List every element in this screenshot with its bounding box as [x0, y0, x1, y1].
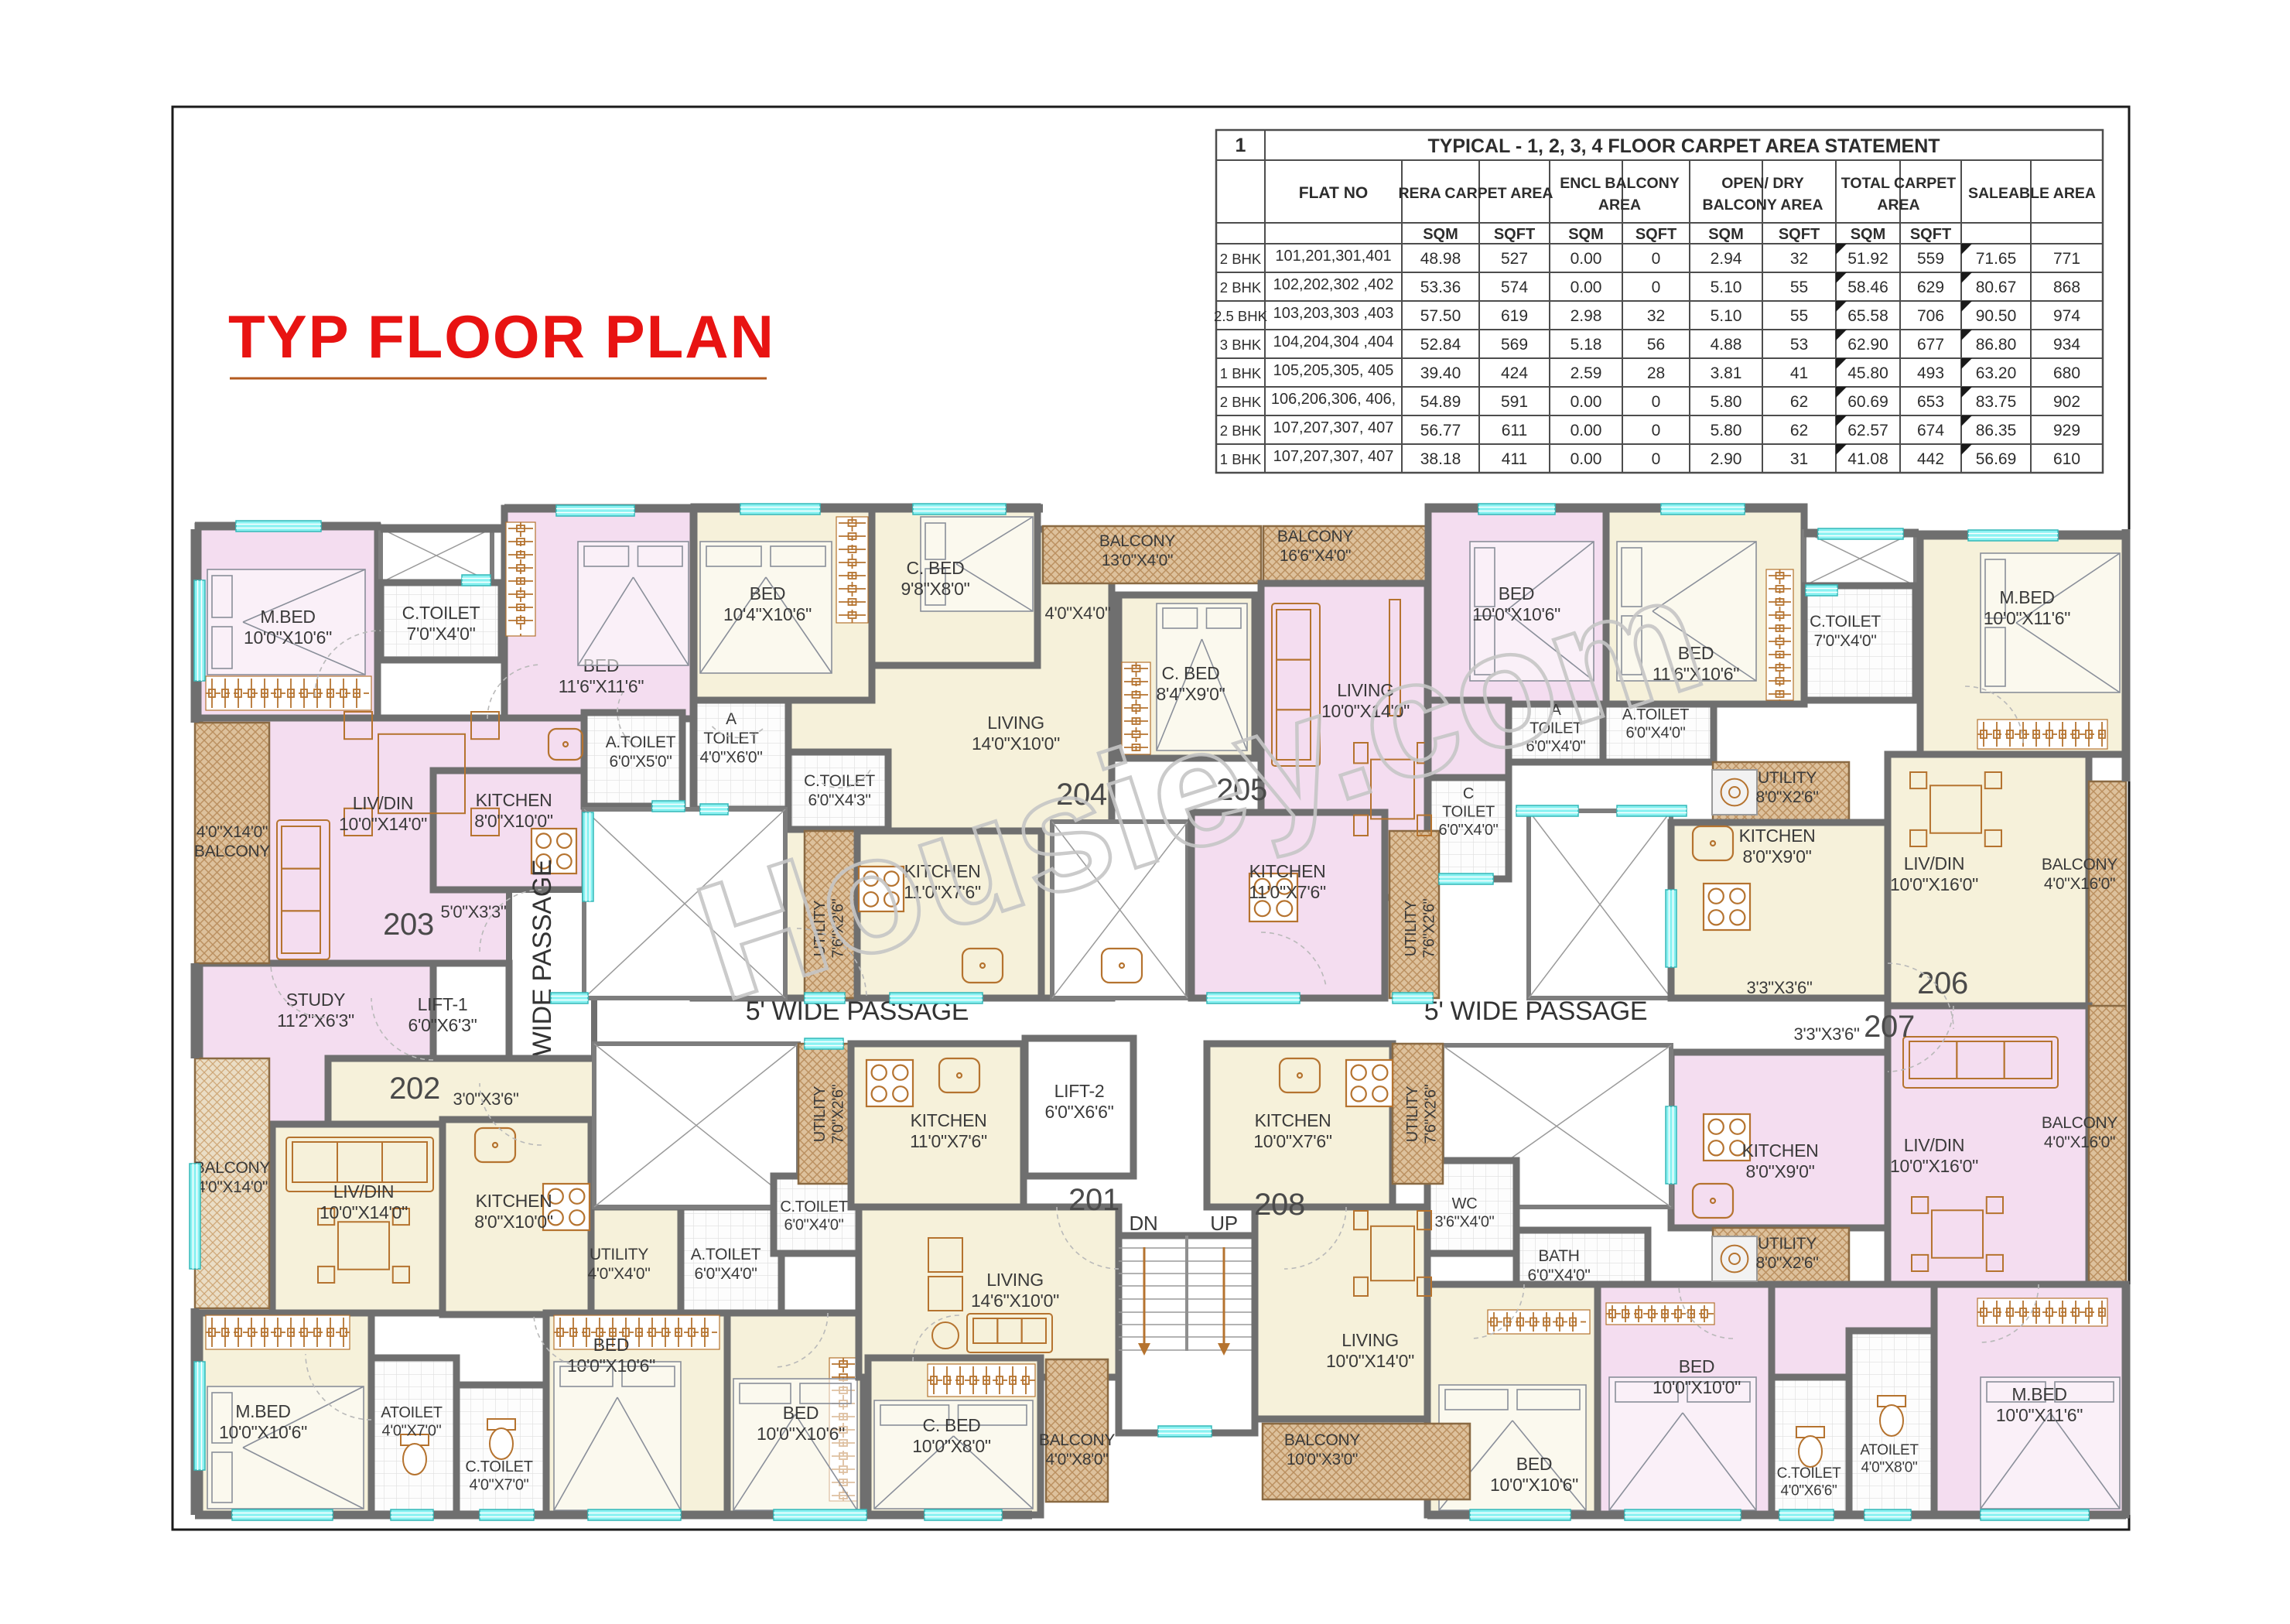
- svg-text:677: 677: [1917, 336, 1944, 354]
- svg-text:STUDY11'2"X6'3": STUDY11'2"X6'3": [277, 990, 354, 1031]
- svg-text:3 BHK: 3 BHK: [1220, 337, 1262, 353]
- svg-text:104,204,304 ,404: 104,204,304 ,404: [1273, 333, 1394, 350]
- svg-text:SQM: SQM: [1423, 226, 1458, 243]
- svg-text:2.98: 2.98: [1571, 307, 1602, 325]
- svg-text:771: 771: [2053, 250, 2080, 268]
- svg-text:UTILITY4'0"X4'0": UTILITY4'0"X4'0": [588, 1246, 651, 1283]
- svg-text:107,207,307, 407: 107,207,307, 407: [1273, 419, 1394, 436]
- svg-text:55: 55: [1790, 307, 1808, 325]
- svg-text:674: 674: [1917, 422, 1944, 439]
- svg-text:0.00: 0.00: [1571, 393, 1602, 411]
- svg-text:4'0"X14'0"BALCONY: 4'0"X14'0"BALCONY: [194, 823, 271, 860]
- svg-text:974: 974: [2053, 307, 2080, 325]
- svg-text:UTILITY8'0"X2'6": UTILITY8'0"X2'6": [1756, 769, 1819, 806]
- svg-text:48.98: 48.98: [1420, 250, 1461, 268]
- svg-text:208: 208: [1254, 1188, 1305, 1222]
- svg-text:58.46: 58.46: [1847, 279, 1888, 296]
- svg-text:4.88: 4.88: [1711, 336, 1742, 354]
- svg-text:424: 424: [1501, 364, 1528, 382]
- svg-text:SQM: SQM: [1708, 226, 1744, 243]
- svg-text:62.90: 62.90: [1847, 336, 1888, 354]
- svg-text:TYP FLOOR PLAN: TYP FLOOR PLAN: [228, 303, 775, 371]
- svg-text:56.69: 56.69: [1976, 450, 2017, 468]
- svg-text:ATOILET4'0"X7'0": ATOILET4'0"X7'0": [381, 1404, 442, 1440]
- svg-text:UTILITY8'0"X2'6": UTILITY8'0"X2'6": [1756, 1235, 1819, 1272]
- svg-text:32: 32: [1647, 307, 1665, 325]
- svg-text:86.35: 86.35: [1976, 422, 2017, 439]
- svg-text:TYPICAL - 1, 2, 3, 4 FLOOR CA: TYPICAL - 1, 2, 3, 4 FLOOR CARPET AREA S…: [1427, 135, 1940, 157]
- svg-text:ATOILET4'0"X8'0": ATOILET4'0"X8'0": [1860, 1442, 1919, 1475]
- svg-text:C.TOILET6'0"X4'0": C.TOILET6'0"X4'0": [780, 1198, 847, 1234]
- svg-text:KITCHEN8'0"X10'0": KITCHEN8'0"X10'0": [474, 1191, 553, 1232]
- svg-text:UTILITY7'6"X2'6": UTILITY7'6"X2'6": [1403, 898, 1438, 958]
- svg-text:KITCHEN8'0"X10'0": KITCHEN8'0"X10'0": [474, 790, 553, 831]
- svg-text:102,202,302 ,402: 102,202,302 ,402: [1273, 276, 1394, 293]
- svg-text:SQFT: SQFT: [1635, 226, 1676, 243]
- svg-text:902: 902: [2053, 393, 2080, 411]
- svg-text:3.81: 3.81: [1711, 364, 1742, 382]
- svg-text:3'3"X3'6": 3'3"X3'6": [1747, 978, 1813, 997]
- svg-text:28: 28: [1647, 364, 1665, 382]
- svg-text:0: 0: [1652, 250, 1661, 268]
- svg-text:BALCONY16'6"X4'0": BALCONY16'6"X4'0": [1277, 528, 1354, 565]
- svg-text:1: 1: [1236, 135, 1246, 156]
- svg-text:619: 619: [1501, 307, 1528, 325]
- svg-text:2.59: 2.59: [1571, 364, 1602, 382]
- svg-text:BALCONY4'0"X16'0": BALCONY4'0"X16'0": [2042, 856, 2118, 893]
- svg-text:C.TOILET7'0"X4'0": C.TOILET7'0"X4'0": [402, 603, 480, 644]
- svg-text:5.80: 5.80: [1711, 393, 1742, 411]
- svg-text:LIFT-26'0"X6'6": LIFT-26'0"X6'6": [1045, 1081, 1114, 1122]
- svg-text:BALCONY13'0"X4'0": BALCONY13'0"X4'0": [1099, 532, 1176, 569]
- svg-text:DN: DN: [1130, 1212, 1158, 1235]
- svg-text:52.84: 52.84: [1420, 336, 1461, 354]
- svg-text:411: 411: [1502, 450, 1527, 468]
- svg-text:C.TOILET4'0"X6'6": C.TOILET4'0"X6'6": [1777, 1465, 1841, 1499]
- svg-text:56: 56: [1647, 336, 1665, 354]
- svg-text:KITCHEN8'0"X9'0": KITCHEN8'0"X9'0": [1739, 826, 1816, 867]
- svg-text:AREA: AREA: [1877, 197, 1919, 214]
- svg-text:0: 0: [1652, 279, 1661, 296]
- svg-text:0: 0: [1652, 422, 1661, 439]
- svg-text:71.65: 71.65: [1976, 250, 2017, 268]
- svg-text:FLAT NO: FLAT NO: [1299, 184, 1368, 202]
- svg-text:53: 53: [1790, 336, 1808, 354]
- svg-text:5'0"X3'3": 5'0"X3'3": [441, 902, 507, 921]
- svg-text:868: 868: [2053, 279, 2080, 296]
- svg-text:AREA: AREA: [1598, 197, 1641, 214]
- svg-text:UTILITY7'6"X2'6": UTILITY7'6"X2'6": [1404, 1084, 1440, 1144]
- svg-text:SQM: SQM: [1851, 226, 1886, 243]
- svg-text:4'0"X4'0": 4'0"X4'0": [1045, 603, 1111, 623]
- svg-text:UTILITY7'0"X2'6": UTILITY7'0"X2'6": [812, 1084, 847, 1144]
- svg-text:2 BHK: 2 BHK: [1220, 251, 1262, 267]
- svg-text:RERA CARPET AREA: RERA CARPET AREA: [1398, 185, 1553, 202]
- svg-text:KITCHEN8'0"X9'0": KITCHEN8'0"X9'0": [1742, 1140, 1819, 1181]
- svg-text:C. BED9'8"X8'0": C. BED9'8"X8'0": [901, 558, 970, 599]
- svg-text:UP: UP: [1210, 1212, 1238, 1235]
- svg-text:LIFT-16'0"X6'3": LIFT-16'0"X6'3": [408, 994, 477, 1035]
- svg-text:527: 527: [1501, 250, 1528, 268]
- svg-text:60.69: 60.69: [1847, 393, 1888, 411]
- svg-text:1 BHK: 1 BHK: [1220, 365, 1262, 381]
- svg-text:39.40: 39.40: [1420, 364, 1461, 382]
- svg-text:5.80: 5.80: [1711, 422, 1742, 439]
- svg-text:62: 62: [1790, 393, 1808, 411]
- svg-text:0.00: 0.00: [1571, 279, 1602, 296]
- svg-text:KITCHEN10'0"X7'6": KITCHEN10'0"X7'6": [1253, 1110, 1332, 1151]
- svg-text:207: 207: [1864, 1010, 1915, 1044]
- svg-text:53.36: 53.36: [1420, 279, 1461, 296]
- svg-text:57.50: 57.50: [1420, 307, 1461, 325]
- svg-text:574: 574: [1501, 279, 1528, 296]
- svg-text:A.TOILET6'0"X5'0": A.TOILET6'0"X5'0": [606, 733, 676, 771]
- svg-text:SALEABLE AREA: SALEABLE AREA: [1968, 185, 2096, 202]
- svg-text:106,206,306, 406,: 106,206,306, 406,: [1271, 391, 1396, 408]
- svg-text:1 BHK: 1 BHK: [1220, 451, 1262, 467]
- svg-text:5.18: 5.18: [1571, 336, 1602, 354]
- svg-text:206: 206: [1917, 966, 1968, 1000]
- svg-text:0.00: 0.00: [1571, 450, 1602, 468]
- svg-text:2 BHK: 2 BHK: [1220, 394, 1262, 410]
- svg-text:653: 653: [1917, 393, 1944, 411]
- svg-text:2 BHK: 2 BHK: [1220, 422, 1262, 439]
- svg-text:55: 55: [1790, 279, 1808, 296]
- svg-text:54.89: 54.89: [1420, 393, 1461, 411]
- svg-text:41: 41: [1790, 364, 1808, 382]
- svg-text:C. BED10'0"X8'0": C. BED10'0"X8'0": [912, 1415, 991, 1456]
- svg-text:569: 569: [1501, 336, 1528, 354]
- svg-text:5' WIDE PASSAGE: 5' WIDE PASSAGE: [1424, 997, 1648, 1026]
- svg-text:83.75: 83.75: [1976, 393, 2017, 411]
- svg-text:C.TOILET7'0"X4'0": C.TOILET7'0"X4'0": [1810, 613, 1881, 650]
- svg-text:2.90: 2.90: [1711, 450, 1742, 468]
- svg-text:SQFT: SQFT: [1494, 226, 1535, 243]
- svg-text:105,205,305, 405: 105,205,305, 405: [1273, 362, 1394, 379]
- svg-text:TOTAL CARPET: TOTAL CARPET: [1841, 175, 1957, 192]
- svg-text:929: 929: [2053, 422, 2080, 439]
- svg-text:202: 202: [389, 1072, 440, 1106]
- svg-text:51.92: 51.92: [1847, 250, 1888, 268]
- svg-text:493: 493: [1917, 364, 1944, 382]
- svg-text:442: 442: [1917, 450, 1944, 468]
- svg-text:OPEN/ DRY: OPEN/ DRY: [1721, 175, 1804, 192]
- svg-text:SQFT: SQFT: [1910, 226, 1951, 243]
- svg-text:680: 680: [2053, 364, 2080, 382]
- svg-text:2 BHK: 2 BHK: [1220, 279, 1262, 296]
- svg-text:BALCONY4'0"X16'0": BALCONY4'0"X16'0": [2042, 1114, 2118, 1151]
- svg-text:65.58: 65.58: [1847, 307, 1888, 325]
- svg-text:KITCHEN11'0"X7'6": KITCHEN11'0"X7'6": [1249, 861, 1326, 902]
- svg-text:SQFT: SQFT: [1779, 226, 1820, 243]
- svg-text:62.57: 62.57: [1847, 422, 1888, 439]
- svg-text:0.00: 0.00: [1571, 422, 1602, 439]
- svg-text:63.20: 63.20: [1976, 364, 2017, 382]
- svg-text:559: 559: [1917, 250, 1944, 268]
- svg-text:56.77: 56.77: [1420, 422, 1461, 439]
- svg-text:KITCHEN11'0"X7'6": KITCHEN11'0"X7'6": [910, 1110, 987, 1151]
- svg-text:C.TOILET4'0"X7'0": C.TOILET4'0"X7'0": [465, 1458, 532, 1494]
- svg-text:629: 629: [1917, 279, 1944, 296]
- svg-text:2.94: 2.94: [1711, 250, 1742, 268]
- svg-text:201: 201: [1068, 1183, 1119, 1217]
- svg-text:610: 610: [2053, 450, 2080, 468]
- svg-text:934: 934: [2053, 336, 2080, 354]
- svg-text:A.TOILET6'0"X4'0": A.TOILET6'0"X4'0": [691, 1246, 761, 1283]
- svg-text:3'0"X3'6": 3'0"X3'6": [453, 1089, 519, 1109]
- svg-text:38.18: 38.18: [1420, 450, 1461, 468]
- svg-text:103,203,303 ,403: 103,203,303 ,403: [1273, 305, 1394, 322]
- svg-text:41.08: 41.08: [1847, 450, 1888, 468]
- svg-text:86.80: 86.80: [1976, 336, 2017, 354]
- svg-text:32: 32: [1790, 250, 1808, 268]
- svg-text:101,201,301,401: 101,201,301,401: [1275, 248, 1391, 265]
- svg-text:31: 31: [1790, 450, 1808, 468]
- svg-text:BALCONY10'0"X3'0": BALCONY10'0"X3'0": [1284, 1431, 1361, 1468]
- svg-text:706: 706: [1917, 307, 1944, 325]
- svg-text:2.5 BHK: 2.5 BHK: [1214, 308, 1268, 324]
- svg-text:5.10: 5.10: [1711, 279, 1742, 296]
- svg-text:611: 611: [1502, 422, 1527, 439]
- svg-text:90.50: 90.50: [1976, 307, 2017, 325]
- svg-text:62: 62: [1790, 422, 1808, 439]
- svg-text:BALCONY4'0"X8'0": BALCONY4'0"X8'0": [1039, 1431, 1116, 1468]
- svg-text:203: 203: [383, 908, 434, 942]
- svg-text:5.10: 5.10: [1711, 307, 1742, 325]
- svg-text:3'3"X3'6": 3'3"X3'6": [1794, 1024, 1860, 1044]
- svg-text:80.67: 80.67: [1976, 279, 2017, 296]
- svg-text:BALCONY AREA: BALCONY AREA: [1702, 197, 1823, 214]
- svg-text:107,207,307, 407: 107,207,307, 407: [1273, 448, 1394, 465]
- svg-text:0: 0: [1652, 393, 1661, 411]
- svg-text:0: 0: [1652, 450, 1661, 468]
- svg-text:591: 591: [1501, 393, 1528, 411]
- svg-text:45.80: 45.80: [1847, 364, 1888, 382]
- svg-text:SQM: SQM: [1568, 226, 1604, 243]
- svg-text:ENCL BALCONY: ENCL BALCONY: [1560, 175, 1680, 192]
- svg-text:5' WIDE PASSAGE: 5' WIDE PASSAGE: [528, 860, 557, 1083]
- svg-text:0.00: 0.00: [1571, 250, 1602, 268]
- svg-text:BALCONY4'0"X14'0": BALCONY4'0"X14'0": [194, 1159, 271, 1196]
